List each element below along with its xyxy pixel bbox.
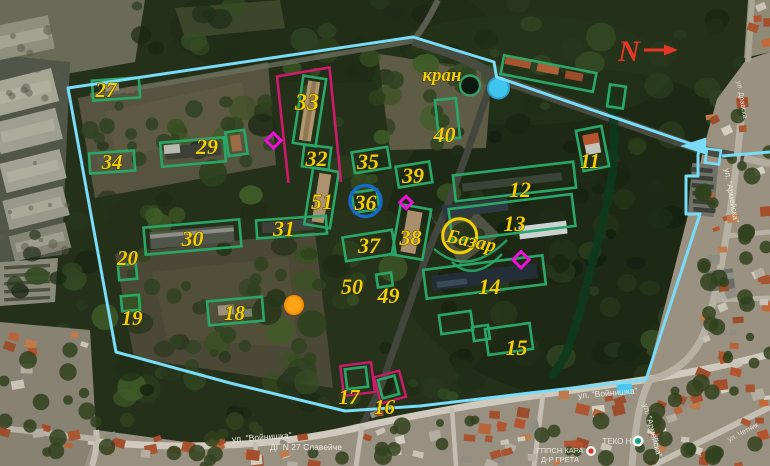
svg-text:38: 38	[399, 225, 422, 250]
svg-text:19: 19	[122, 306, 144, 330]
svg-text:29: 29	[195, 134, 218, 159]
svg-text:50: 50	[341, 274, 363, 299]
svg-text:40: 40	[433, 122, 456, 147]
svg-text:14: 14	[479, 274, 501, 299]
svg-text:16: 16	[374, 395, 396, 419]
svg-text:18: 18	[224, 301, 246, 325]
svg-text:30: 30	[181, 226, 204, 251]
svg-text:35: 35	[356, 149, 379, 174]
svg-text:36: 36	[354, 190, 377, 215]
svg-text:11: 11	[580, 149, 600, 173]
svg-text:33: 33	[294, 90, 319, 116]
svg-text:34: 34	[101, 150, 123, 174]
svg-text:37: 37	[357, 233, 381, 258]
svg-text:39: 39	[401, 163, 424, 188]
svg-text:27: 27	[95, 78, 119, 102]
svg-text:кран: кран	[422, 65, 461, 86]
svg-text:N: N	[617, 35, 641, 68]
svg-text:13: 13	[504, 211, 526, 236]
svg-text:12: 12	[509, 177, 531, 202]
svg-text:32: 32	[305, 146, 328, 171]
svg-text:49: 49	[377, 283, 400, 308]
svg-text:15: 15	[506, 335, 528, 360]
svg-text:20: 20	[116, 246, 139, 270]
svg-text:ТЕКО Н.: ТЕКО Н.	[602, 437, 633, 446]
svg-text:31: 31	[272, 216, 295, 241]
svg-text:51: 51	[311, 189, 333, 214]
svg-text:Д-Р ГРЕТА: Д-Р ГРЕТА	[541, 455, 579, 464]
svg-text:ГППСН КАРА: ГППСН КАРА	[537, 446, 584, 455]
svg-text:17: 17	[339, 385, 362, 409]
svg-text:ДГ N 27 Славейче: ДГ N 27 Славейче	[270, 442, 342, 452]
